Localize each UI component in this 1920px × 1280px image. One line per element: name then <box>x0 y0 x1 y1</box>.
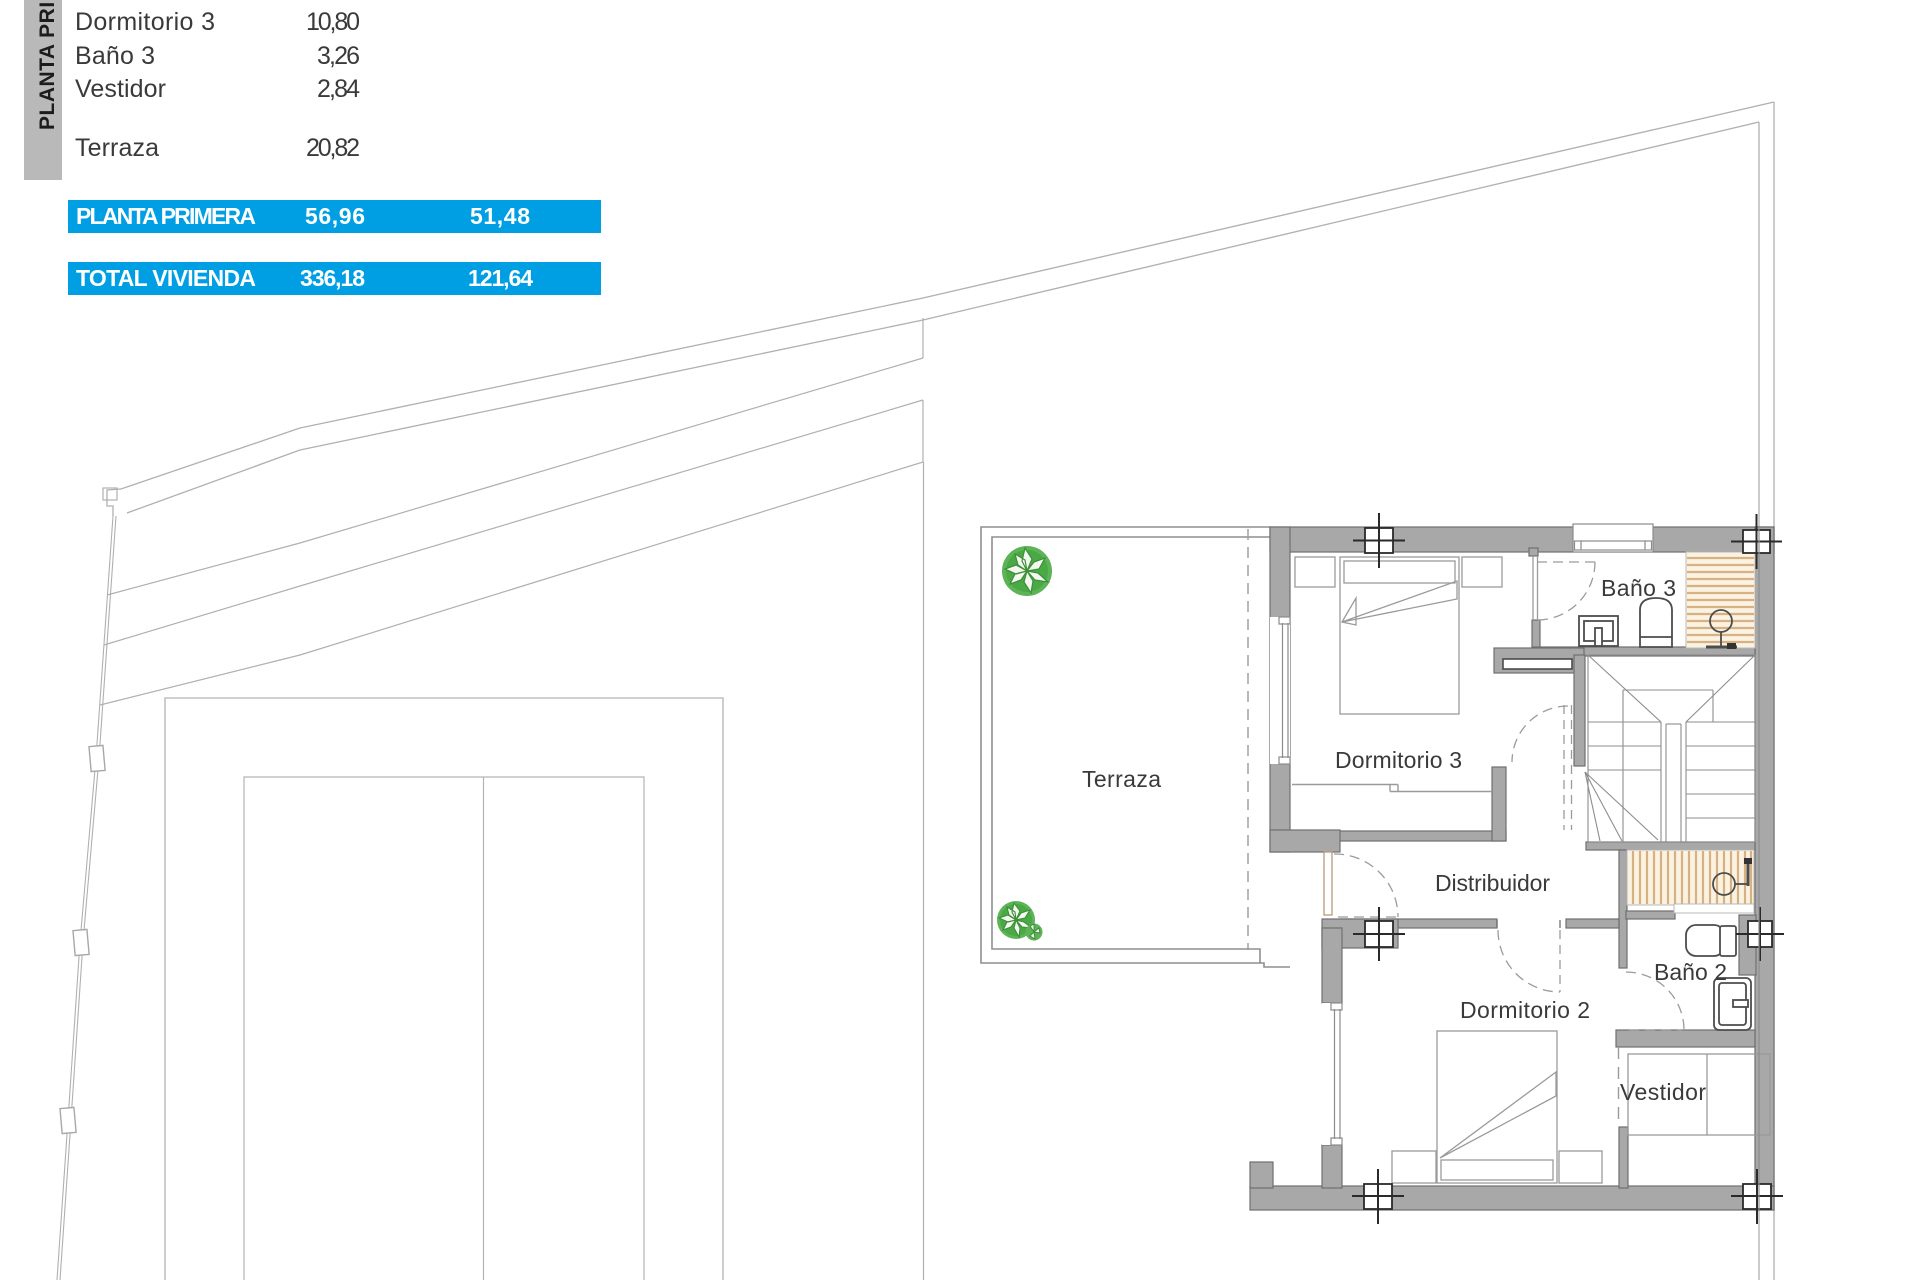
svg-text:51,48: 51,48 <box>470 203 530 229</box>
svg-text:20,82: 20,82 <box>306 134 360 162</box>
svg-text:Terraza: Terraza <box>75 134 159 162</box>
svg-text:PLANTA PRIMERA: PLANTA PRIMERA <box>76 203 256 229</box>
svg-text:56,96: 56,96 <box>305 203 365 229</box>
svg-text:10,80: 10,80 <box>306 8 360 36</box>
svg-text:Baño 3: Baño 3 <box>1601 575 1676 601</box>
svg-text:PLANTA PRIMERA: PLANTA PRIMERA <box>36 0 59 130</box>
svg-text:Distribuidor: Distribuidor <box>1435 870 1550 896</box>
svg-text:121,64: 121,64 <box>468 265 533 291</box>
svg-text:TOTAL VIVIENDA: TOTAL VIVIENDA <box>76 265 256 291</box>
svg-text:3,26: 3,26 <box>317 42 360 70</box>
svg-text:336,18: 336,18 <box>300 265 365 291</box>
svg-text:Vestidor: Vestidor <box>75 75 166 103</box>
svg-text:2,84: 2,84 <box>317 75 360 103</box>
svg-text:Vestidor: Vestidor <box>1620 1079 1706 1105</box>
svg-text:Baño 3: Baño 3 <box>75 42 155 70</box>
svg-text:Dormitorio 3: Dormitorio 3 <box>1335 747 1462 773</box>
svg-text:Terraza: Terraza <box>1082 766 1161 792</box>
svg-text:Dormitorio 3: Dormitorio 3 <box>75 8 215 36</box>
svg-text:Dormitorio 2: Dormitorio 2 <box>1460 997 1590 1023</box>
svg-text:Baño 2: Baño 2 <box>1654 959 1727 985</box>
